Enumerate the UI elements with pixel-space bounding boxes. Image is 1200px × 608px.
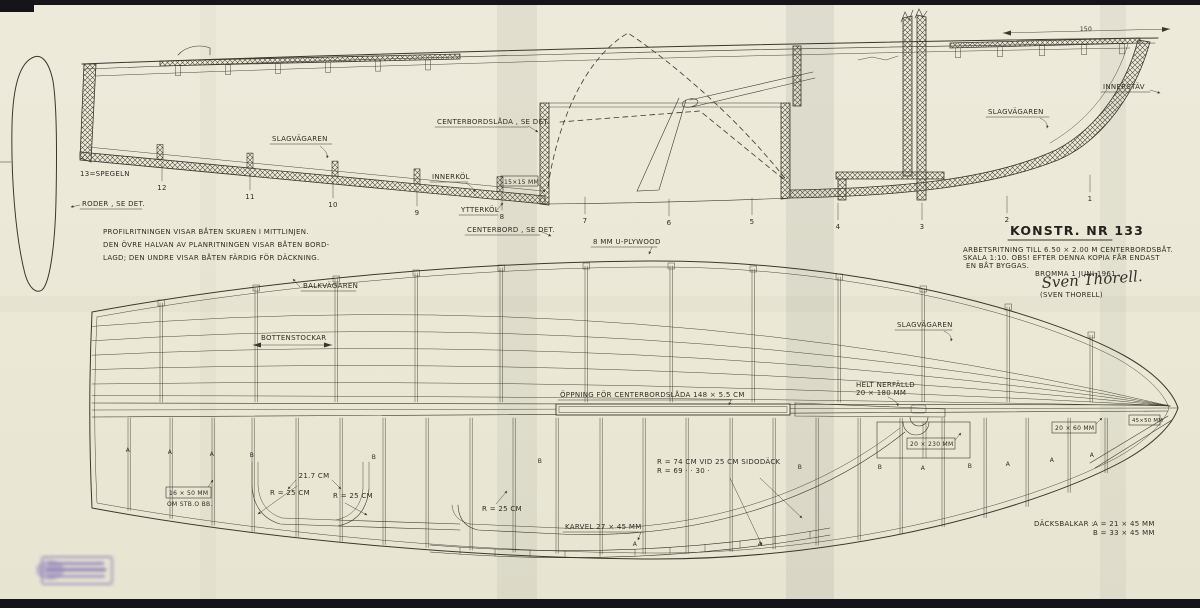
notes-line2: DEN ÖVRE HALVAN AV PLANRITNINGEN VISAR B… bbox=[103, 240, 330, 249]
floor-timber-section bbox=[414, 169, 420, 184]
floor-timber-section bbox=[332, 161, 338, 176]
label-centerbordslada: CENTERBORDSLÅDA , SE DET. bbox=[437, 117, 550, 126]
deck-beam-section bbox=[276, 63, 281, 73]
halyard-fitting bbox=[858, 56, 898, 60]
frame-head bbox=[836, 274, 843, 280]
label-slagvagaren-aft: SLAGVÄGAREN bbox=[272, 134, 328, 143]
station-number: 6 bbox=[667, 219, 672, 227]
station-number: 10 bbox=[328, 201, 338, 209]
keel-aft-section bbox=[80, 152, 545, 204]
station-number: 3 bbox=[920, 223, 925, 231]
label-balkvagaren: BALKVÄGAREN bbox=[303, 281, 358, 290]
label-dacksbalkar-a: A = 21 × 45 MM bbox=[1093, 520, 1155, 528]
label-radius1: R = 74 CM VID 25 CM SIDODÄCK bbox=[657, 457, 781, 466]
deck-beam-section bbox=[1082, 45, 1087, 55]
drawing-sheet: 13=SPEGELN RODER , SE DET. SLAGVÄGAREN C… bbox=[0, 0, 1200, 608]
drawing-title: KONSTR. NR 133 bbox=[1010, 223, 1144, 238]
label-bottenstockar: BOTTENSTOCKAR bbox=[261, 334, 326, 342]
label-20x230: 20 × 230 MM bbox=[910, 441, 954, 448]
centerboard-lowered bbox=[637, 98, 686, 191]
station-number: 1 bbox=[1088, 195, 1093, 203]
deck-beam-letter: A bbox=[921, 465, 926, 472]
rudder-outline bbox=[12, 56, 57, 291]
label-ytterkol: YTTERKÖL bbox=[460, 205, 499, 214]
label-dim217: 21.7 CM bbox=[299, 472, 330, 480]
deck-beam-section bbox=[956, 48, 961, 58]
label-radius2: R = 69 · · 30 · bbox=[657, 467, 710, 475]
transom-section bbox=[80, 64, 96, 162]
label-slagvagaren-plan: SLAGVÄGAREN bbox=[897, 320, 953, 329]
label-plywood: 8 MM U-PLYWOOD bbox=[593, 238, 661, 246]
station-number: 8 bbox=[500, 213, 505, 221]
label-centerbord: CENTERBORD , SE DET. bbox=[467, 226, 555, 234]
label-mast-dim: 150 bbox=[1080, 26, 1092, 33]
mast-section-aft bbox=[903, 16, 912, 176]
frame-head bbox=[668, 263, 675, 269]
centerboard-swing-chord bbox=[560, 111, 787, 182]
karvel-strip bbox=[430, 528, 830, 551]
label-45x50: 45×50 MM bbox=[1132, 418, 1163, 424]
case-bottom-line bbox=[545, 198, 790, 204]
deck-beam-letter: A bbox=[1050, 457, 1055, 464]
station-number: 9 bbox=[415, 209, 420, 217]
label-r25-right: R = 25 CM bbox=[333, 492, 373, 500]
deck-beam-section bbox=[326, 62, 331, 72]
mast-partner bbox=[877, 422, 970, 458]
deck-beam-letter: B bbox=[968, 463, 972, 470]
label-spegeln: 13=SPEGELN bbox=[80, 170, 130, 178]
deck-beam-letter: A bbox=[1090, 452, 1095, 459]
deck-beam-letter: A bbox=[1006, 461, 1011, 468]
centerboard-slot bbox=[556, 404, 790, 415]
boat-drawing-svg: 13=SPEGELN RODER , SE DET. SLAGVÄGAREN C… bbox=[0, 0, 1200, 608]
frame-head bbox=[750, 266, 757, 272]
label-slagvagaren-fwd: SLAGVÄGAREN bbox=[988, 107, 1044, 116]
deck-beam-section bbox=[998, 47, 1003, 57]
frame-head bbox=[253, 285, 260, 291]
deck-beam-section bbox=[176, 66, 181, 76]
scan-edge bbox=[30, 0, 1200, 5]
scan-edge bbox=[0, 0, 34, 12]
floor-timber-section bbox=[157, 145, 163, 160]
station-number: 4 bbox=[836, 223, 841, 231]
title-line3: EN BÅT BYGGAS. bbox=[966, 261, 1029, 270]
thwart-post bbox=[838, 179, 846, 200]
station-number: 5 bbox=[750, 218, 755, 226]
label-r25-front: R = 25 CM bbox=[482, 505, 522, 513]
carline-aft bbox=[336, 520, 460, 530]
station-number: 2 bbox=[1005, 216, 1010, 224]
station-number: 7 bbox=[583, 217, 588, 225]
label-20x60: 20 × 60 MM bbox=[1055, 425, 1094, 432]
pivot-notch bbox=[910, 417, 928, 426]
deck-beam-letter: B bbox=[372, 454, 376, 461]
deck-beam-section bbox=[426, 60, 431, 70]
deck-beam-letters: AAABBBBBABAAAAA bbox=[126, 447, 1095, 548]
title-block: KONSTR. NR 133 ARBETSRITNING TILL 6.50 ×… bbox=[963, 223, 1173, 299]
deck-beam-section bbox=[226, 65, 231, 75]
label-dacksbalkar: DÄCKSBALKAR : bbox=[1034, 519, 1094, 528]
label-stod1: 16 × 50 MM bbox=[169, 490, 208, 497]
label-helt-nerfalld2: 20 × 180 MM bbox=[856, 389, 906, 397]
deck-beam-section bbox=[1040, 46, 1045, 56]
label-dacksbalkar-b: B = 33 × 45 MM bbox=[1093, 529, 1155, 537]
floor-timber-section bbox=[247, 153, 253, 168]
deck-beam-letter: B bbox=[798, 464, 802, 471]
archive-stamp bbox=[36, 557, 112, 584]
label-karvel: KARVEL 27 × 45 MM bbox=[565, 523, 642, 531]
label-keel-dim: 15×15 MM bbox=[504, 179, 539, 186]
label-innerstav: INNERSTÄV bbox=[1103, 82, 1145, 91]
station-number: 12 bbox=[157, 184, 167, 192]
scan-edge bbox=[0, 599, 1200, 608]
label-stod2: OM STB.O BB. bbox=[167, 501, 213, 508]
title-line1: ARBETSRITNING TILL 6.50 × 2.00 M CENTERB… bbox=[963, 245, 1173, 254]
station-number: 11 bbox=[245, 193, 255, 201]
label-innerkol: INNERKÖL bbox=[432, 172, 470, 181]
pivot-fitting bbox=[911, 405, 926, 413]
title-line2: SKALA 1:10. OBS! EFTER DENNA KOPIA FÅR E… bbox=[963, 253, 1160, 262]
fold-shadow bbox=[0, 296, 1200, 312]
deck-beam-letter: B bbox=[538, 458, 542, 465]
signature-printed: (SVEN THORELL) bbox=[1040, 291, 1103, 299]
label-roder: RODER , SE DET. bbox=[82, 200, 145, 208]
case-fwd-end bbox=[781, 103, 790, 199]
deck-beam-letter: A bbox=[633, 541, 638, 548]
thwart bbox=[836, 172, 944, 179]
notes-line1: PROFILRITNINGEN VISAR BÅTEN SKUREN I MIT… bbox=[103, 227, 309, 236]
label-r25-left: R = 25 CM bbox=[270, 489, 310, 497]
frame-head bbox=[1088, 332, 1095, 338]
floor-timber-section bbox=[497, 177, 503, 192]
notes: PROFILRITNINGEN VISAR BÅTEN SKUREN I MIT… bbox=[103, 227, 330, 262]
notes-line3: LAGD; DEN UNDRE VISAR BÅTEN FÄRDIG FÖR D… bbox=[103, 253, 319, 262]
deck-beam-letter: A bbox=[758, 541, 763, 548]
deck-beam-letter: B bbox=[878, 464, 882, 471]
